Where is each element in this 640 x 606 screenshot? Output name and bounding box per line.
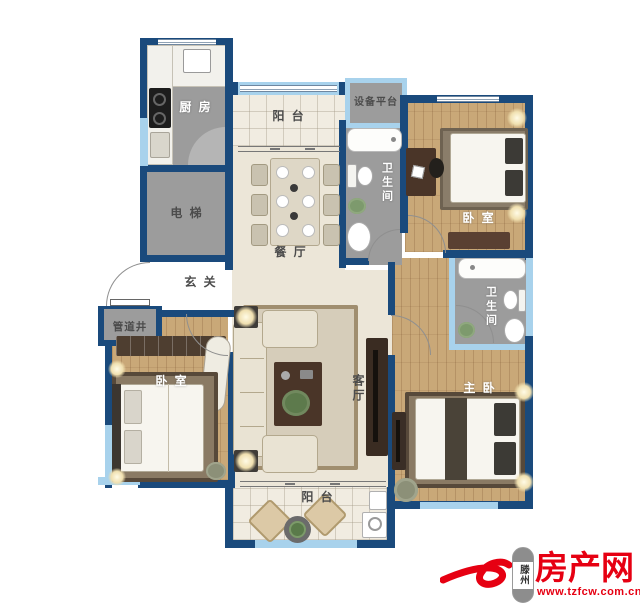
window [437, 96, 499, 102]
brand-badge-text: 滕州 [516, 565, 530, 586]
plant [206, 462, 226, 480]
bed-blanket [445, 398, 467, 480]
lamp [108, 468, 126, 486]
bed-pillow [494, 442, 516, 475]
bathroom-sink [504, 318, 525, 343]
label-equipment-platform: 设备平台 [354, 98, 398, 108]
lamp [235, 450, 257, 472]
lamp [514, 382, 534, 402]
balcony-sink [369, 491, 387, 510]
window [158, 39, 216, 45]
label-bathroom-north: 卫生间 [381, 162, 392, 204]
label-bathroom-east: 卫生间 [485, 286, 496, 328]
label-master-bedroom: 主 卧 [463, 382, 496, 394]
lamp [514, 472, 534, 492]
toilet-icon [518, 289, 526, 312]
wall [443, 250, 532, 258]
label-dining: 餐 厅 [274, 246, 307, 258]
wall [387, 487, 395, 548]
window [140, 118, 148, 166]
bed-pillow [505, 138, 523, 164]
toilet-icon [347, 164, 357, 188]
bed-pillow [494, 403, 516, 436]
brand-logo-icon [440, 548, 512, 598]
bed-headboard [112, 384, 121, 472]
brand-site-url: www.tzfcw.com.cn [537, 586, 640, 598]
label-balcony-top: 阳 台 [272, 110, 305, 122]
sliding-door [238, 146, 340, 152]
dining-chair [323, 164, 340, 186]
brand-badge: 滕州 [512, 547, 534, 603]
window [240, 85, 337, 92]
wall [388, 262, 395, 315]
lamp [507, 108, 527, 128]
plant [289, 521, 306, 538]
bed-pillow [505, 170, 523, 196]
dresser [448, 232, 510, 249]
plant [348, 198, 366, 214]
dining-chair [323, 194, 340, 216]
armchair [262, 435, 318, 473]
bed-pillow [124, 390, 142, 424]
floor-plan: 厨 房 电 梯 阳 台 设备平台 卫生间 卧 室 餐 厅 玄 关 管道井 卧 室… [0, 0, 640, 606]
desk-chair [429, 158, 444, 178]
label-pipe-shaft: 管道井 [113, 322, 148, 333]
wall [357, 540, 395, 548]
toilet-icon [503, 290, 518, 310]
plant [394, 478, 418, 502]
dining-chair [251, 224, 268, 246]
label-elevator: 电 梯 [170, 207, 203, 219]
kitchen-sink [183, 49, 211, 73]
sliding-door [240, 481, 386, 487]
wall [339, 82, 345, 95]
window [526, 258, 533, 336]
label-foyer: 玄 关 [184, 276, 217, 288]
window [420, 502, 498, 509]
wall [225, 540, 255, 548]
wall [225, 487, 233, 548]
label-kitchen: 厨 房 [179, 101, 212, 113]
wall [339, 258, 369, 265]
lamp [507, 203, 527, 223]
dining-chair [251, 194, 268, 216]
label-bedroom-ne: 卧 室 [462, 212, 495, 224]
label-living: 客厅 [352, 374, 364, 404]
lamp [108, 360, 126, 378]
bathtub [458, 258, 526, 279]
wall [339, 120, 346, 268]
dining-chair [251, 164, 268, 186]
bed-pillow [124, 430, 142, 464]
wall [225, 38, 233, 270]
lamp [235, 306, 257, 328]
wall [232, 82, 238, 95]
dining-chair [323, 224, 340, 246]
toilet-icon [357, 166, 373, 186]
label-balcony-bottom: 阳 台 [301, 491, 334, 503]
bathroom-sink [347, 222, 371, 252]
door-leaf [110, 299, 150, 306]
armchair [262, 310, 318, 348]
kitchen-appliance [150, 132, 170, 158]
label-bedroom-west: 卧 室 [155, 375, 188, 387]
brand-site-name: 房产网 [535, 551, 634, 584]
plant [282, 390, 310, 416]
